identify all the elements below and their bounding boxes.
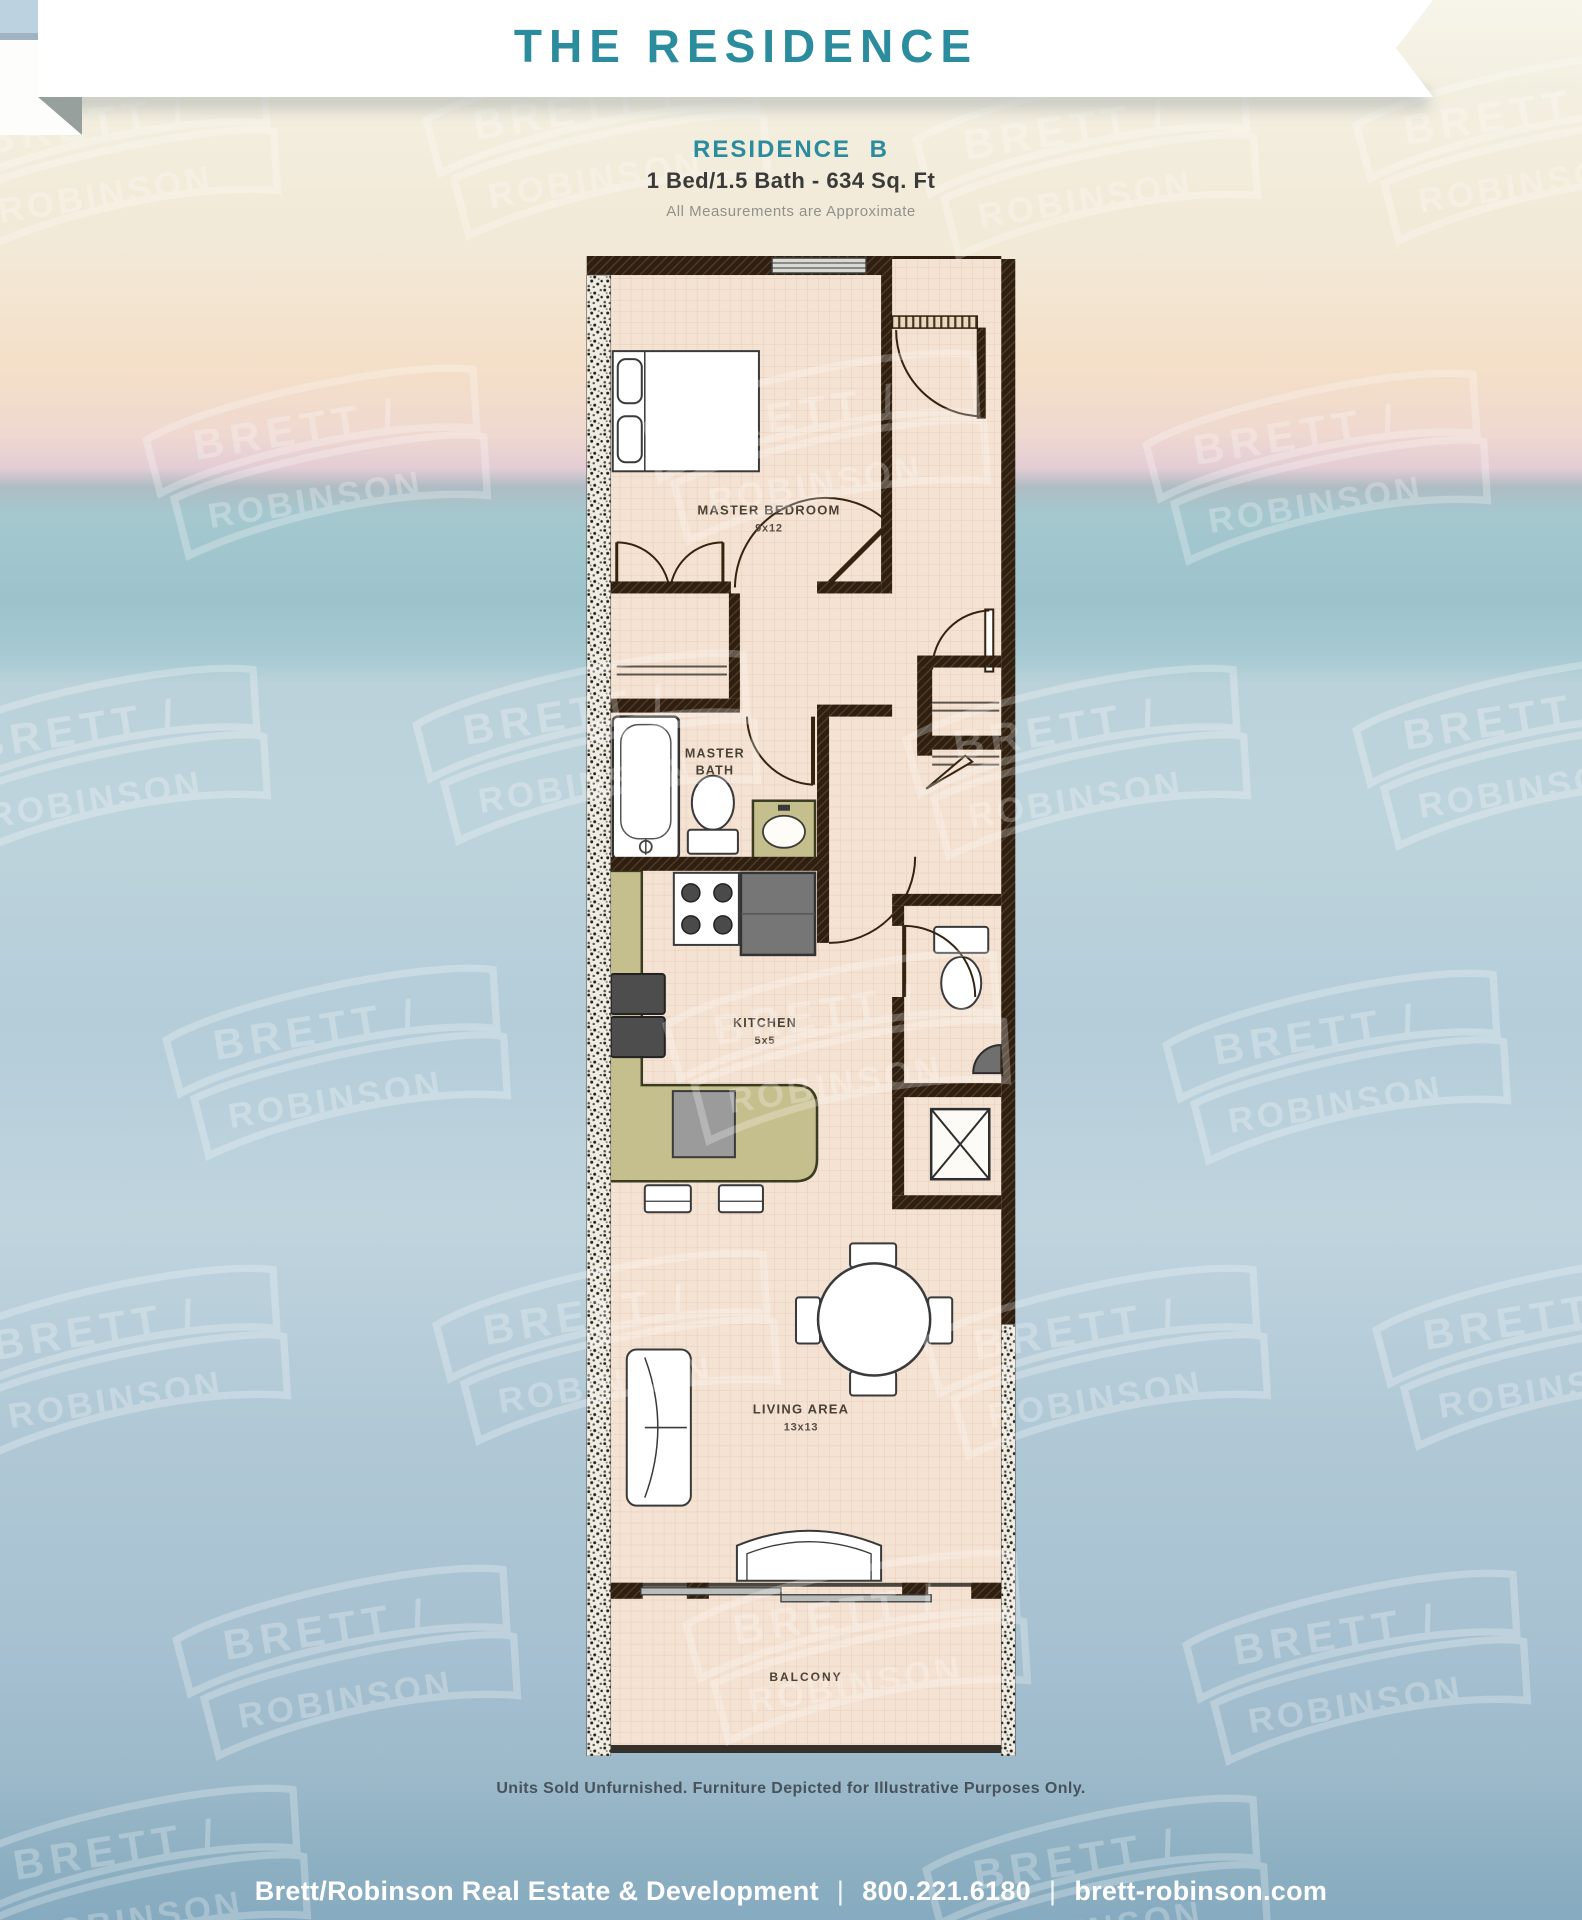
label-balcony: BALCONY (769, 1670, 842, 1684)
sofa (627, 1349, 691, 1505)
right-exterior-wall (1001, 259, 1015, 1324)
slider-track (611, 1583, 1002, 1587)
bathtub (613, 717, 679, 859)
residence-specs: 1 Bed/1.5 Bath - 634 Sq. Ft (0, 168, 1582, 194)
bedroom-window (772, 258, 866, 273)
page-title: THE RESIDENCE (514, 19, 978, 79)
label-living-area: LIVING AREA (753, 1402, 850, 1417)
left-exterior-wall (587, 275, 611, 1756)
loveseat (737, 1531, 881, 1581)
label-living-area-dims: 13x13 (784, 1422, 819, 1434)
measurements-note: All Measurements are Approximate (0, 203, 1582, 220)
footer-bar: Brett/Robinson Real Estate & Development… (0, 1876, 1582, 1907)
stove (674, 873, 739, 945)
label-master-bath-1: MASTER (685, 747, 745, 761)
bed (613, 351, 759, 471)
footer-phone: 800.221.6180 (862, 1876, 1031, 1907)
disclaimer-text: Units Sold Unfurnished. Furniture Depict… (0, 1780, 1582, 1798)
sliding-door-panel (781, 1595, 931, 1602)
label-master-bath-2: BATH (696, 764, 735, 778)
footer-separator: | (837, 1876, 844, 1907)
floor (611, 259, 1002, 1745)
residence-label: RESIDENCE B (0, 136, 1582, 164)
footer-website: brett-robinson.com (1074, 1876, 1327, 1907)
flyer-page: MASTER BEDROOM 9x12 MASTER BATH KITCHEN … (0, 0, 1582, 1920)
balcony-rail (611, 1745, 1002, 1753)
banner-face: THE RESIDENCE (0, 0, 1582, 97)
title-banner: THE RESIDENCE (0, 0, 1582, 97)
sliding-door-panel (641, 1588, 781, 1595)
footer-separator: | (1049, 1876, 1056, 1907)
label-kitchen: KITCHEN (733, 1016, 797, 1030)
pillow (618, 416, 642, 462)
water-heater (931, 1109, 989, 1179)
floor-plan-svg: MASTER BEDROOM 9x12 MASTER BATH KITCHEN … (586, 256, 1016, 1756)
footer-company: Brett/Robinson Real Estate & Development (255, 1876, 819, 1907)
label-master-bedroom: MASTER BEDROOM (697, 502, 840, 517)
vanity-sink (753, 801, 815, 859)
floor-plan: MASTER BEDROOM 9x12 MASTER BATH KITCHEN … (586, 256, 1016, 1756)
label-kitchen-dims: 5x5 (755, 1035, 776, 1047)
dishwasher (673, 1091, 735, 1157)
label-master-bedroom-dims: 9x12 (755, 522, 783, 534)
entry-louver (892, 316, 977, 328)
toilet (688, 776, 738, 854)
pillow (618, 359, 642, 403)
